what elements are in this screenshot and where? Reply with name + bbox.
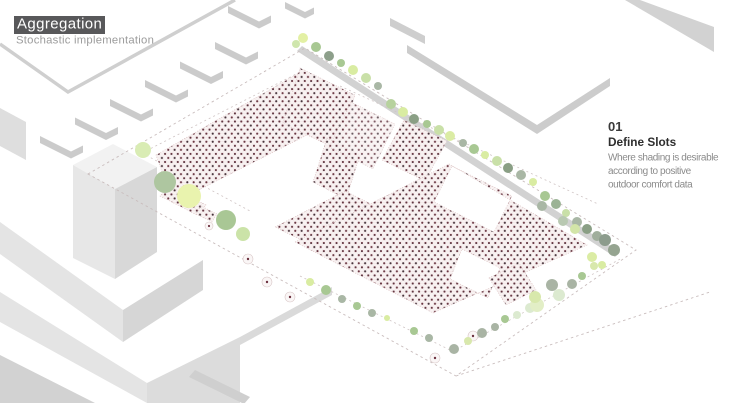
svg-text:Stochastic implementation: Stochastic implementation xyxy=(16,35,154,47)
svg-text:01: 01 xyxy=(608,119,622,134)
svg-text:Aggregation: Aggregation xyxy=(17,16,102,33)
svg-text:outdoor comfort data: outdoor comfort data xyxy=(608,179,693,190)
svg-text:Where shading is desirable: Where shading is desirable xyxy=(608,153,719,164)
svg-text:Define Slots: Define Slots xyxy=(608,135,677,149)
svg-text:according to positive: according to positive xyxy=(608,166,692,177)
